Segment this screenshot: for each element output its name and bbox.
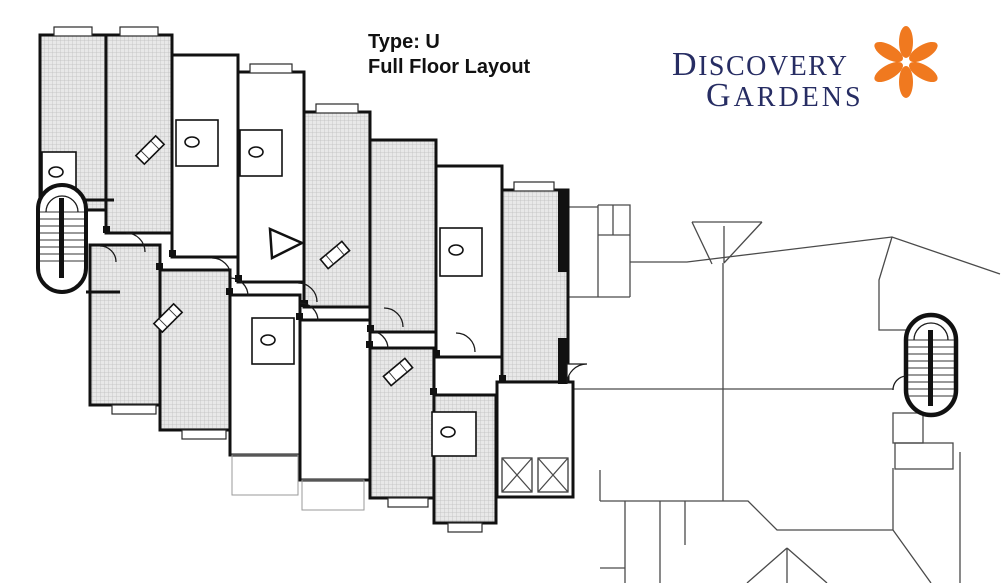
wing-room-box <box>895 443 953 469</box>
column <box>226 288 233 295</box>
balcony <box>250 64 292 73</box>
column <box>169 250 176 257</box>
elevator-lobby <box>497 382 573 497</box>
logo-gardens-text: GARDENS <box>706 77 864 114</box>
logo-discovery-text: DISCOVERY <box>672 46 849 83</box>
column <box>156 263 163 270</box>
apartment-unit <box>300 320 370 480</box>
wing-mass-outline <box>630 237 1000 330</box>
column <box>103 226 110 233</box>
column <box>433 350 440 357</box>
petal <box>899 66 913 98</box>
apartment-unit <box>90 245 160 405</box>
balcony <box>388 498 428 507</box>
apartment-unit <box>160 270 230 430</box>
balcony <box>514 182 554 191</box>
title-block: Type: U Full Floor Layout <box>368 31 531 78</box>
discovery-gardens-logo: DISCOVERY GARDENS <box>672 26 941 114</box>
floorplan-page: Type: U Full Floor Layout DISCOVERY GARD… <box>0 0 1002 583</box>
logo-flower-icon <box>871 26 940 98</box>
column <box>366 341 373 348</box>
petal <box>899 26 913 58</box>
wing-lower-rooms <box>600 501 827 583</box>
column <box>430 388 437 395</box>
balcony <box>112 405 156 414</box>
bathroom <box>440 228 482 276</box>
elevator-shaft-icon <box>538 458 568 492</box>
title-line-2: Full Floor Layout <box>368 56 531 78</box>
balcony <box>182 430 226 439</box>
apartment-unit <box>106 35 172 233</box>
floorplan-svg: Type: U Full Floor Layout DISCOVERY GARD… <box>0 0 1002 583</box>
column <box>296 313 303 320</box>
bathroom <box>432 412 476 456</box>
bathroom <box>176 120 218 166</box>
elevator-shaft-icon <box>502 458 532 492</box>
stair-divider <box>59 198 64 278</box>
column <box>499 375 506 382</box>
balcony <box>316 104 358 113</box>
balcony <box>54 27 92 36</box>
title-line-1: Type: U <box>368 31 440 53</box>
wing-lower-outline <box>600 263 960 583</box>
wing-top-rooms <box>565 205 630 297</box>
apartment-unit <box>370 140 436 332</box>
balcony <box>120 27 158 36</box>
stair-divider <box>928 330 933 406</box>
terrace-outline <box>232 455 298 495</box>
apartment-unit <box>304 112 370 307</box>
terrace-outline <box>302 480 364 510</box>
wing-room-box <box>893 413 923 443</box>
bathroom <box>240 130 282 176</box>
bathroom <box>252 318 294 364</box>
balcony <box>448 523 482 532</box>
